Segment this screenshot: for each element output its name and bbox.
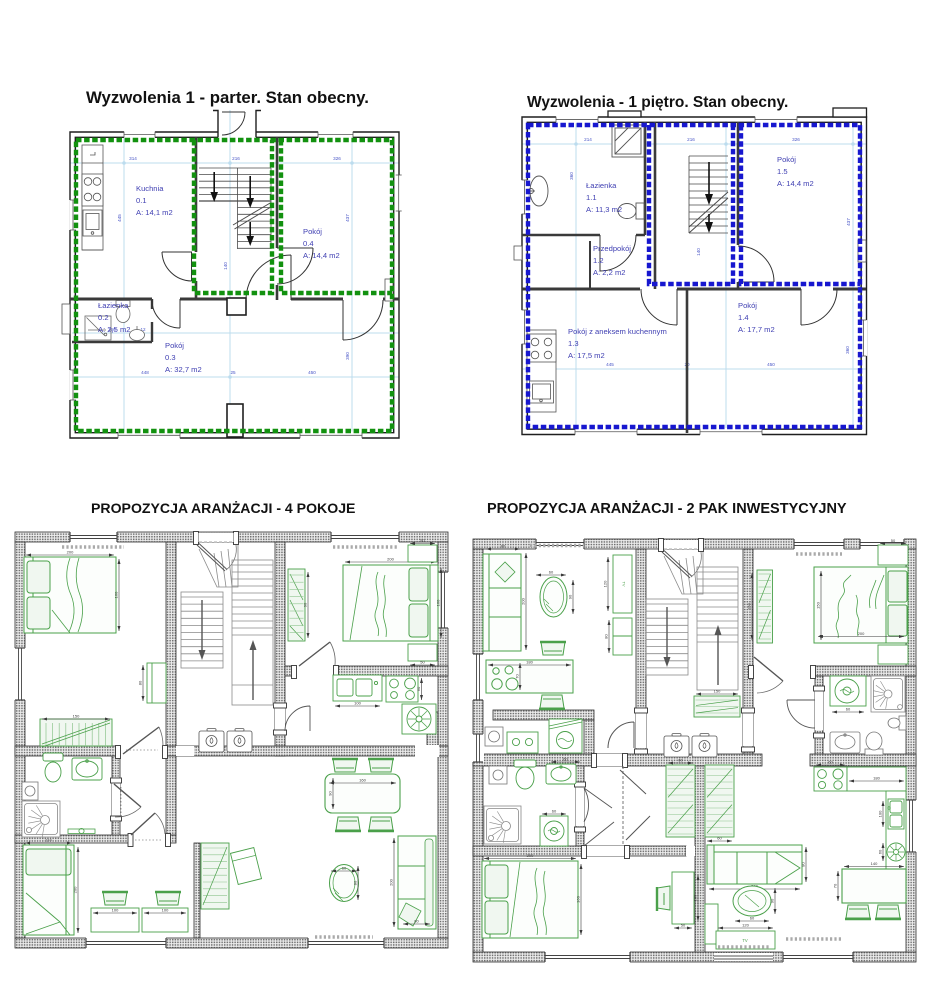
svg-text:0.3: 0.3 [165, 353, 176, 362]
svg-text:0.2: 0.2 [98, 313, 109, 322]
svg-text:150: 150 [816, 601, 821, 608]
svg-text:Łazienka: Łazienka [98, 301, 129, 310]
svg-text:200: 200 [521, 597, 526, 604]
svg-text:100: 100 [878, 810, 883, 817]
svg-text:200: 200 [389, 878, 394, 885]
svg-text:A: 14,4 m2: A: 14,4 m2 [303, 251, 340, 260]
svg-text:PROPOZYCJA ARANŻACJI - 2 PAK I: PROPOZYCJA ARANŻACJI - 2 PAK INWESTYCYJN… [487, 500, 847, 517]
svg-text:60: 60 [828, 760, 833, 765]
svg-text:50: 50 [681, 923, 686, 928]
svg-text:445: 445 [117, 214, 122, 222]
svg-text:314: 314 [129, 156, 137, 161]
svg-text:326: 326 [792, 137, 800, 142]
svg-text:110: 110 [45, 838, 52, 843]
svg-text:Pokój: Pokój [777, 155, 796, 164]
svg-text:70: 70 [833, 883, 838, 888]
svg-text:50: 50 [420, 538, 425, 543]
svg-text:Kuchnia: Kuchnia [136, 184, 164, 193]
svg-text:200: 200 [387, 557, 394, 562]
svg-text:Pokój: Pokój [165, 341, 184, 350]
svg-text:80: 80 [604, 634, 609, 639]
svg-text:0.1: 0.1 [136, 196, 147, 205]
svg-text:60: 60 [563, 757, 568, 762]
svg-text:60: 60 [878, 849, 883, 854]
svg-text:A: 2,2 m2: A: 2,2 m2 [593, 268, 626, 277]
svg-text:1.4: 1.4 [738, 313, 749, 322]
svg-text:60: 60 [549, 570, 554, 575]
svg-text:Pokój: Pokój [303, 227, 322, 236]
svg-text:80: 80 [353, 880, 358, 885]
svg-text:160: 160 [436, 599, 441, 606]
svg-text:A: 17,5 m2: A: 17,5 m2 [568, 351, 605, 360]
svg-text:150: 150 [714, 689, 721, 694]
svg-text:TV: TV [742, 938, 748, 943]
svg-text:150: 150 [747, 602, 752, 609]
svg-text:A: 14,1 m2: A: 14,1 m2 [136, 208, 173, 217]
svg-text:160: 160 [114, 591, 119, 598]
svg-text:160: 160 [576, 895, 581, 902]
svg-text:437: 437 [345, 214, 350, 222]
svg-text:Pokój: Pokój [738, 301, 757, 310]
svg-text:80: 80 [414, 919, 419, 924]
svg-text:Pokój z aneksem kuchennym: Pokój z aneksem kuchennym [568, 327, 667, 336]
svg-text:216: 216 [232, 156, 240, 161]
svg-text:216: 216 [687, 137, 695, 142]
svg-text:80: 80 [501, 544, 506, 549]
svg-text:60: 60 [416, 686, 421, 691]
svg-text:PROPOZYCJA ARANŻACJI - 4 POKOJ: PROPOZYCJA ARANŻACJI - 4 POKOJE [91, 500, 355, 516]
svg-text:100: 100 [354, 701, 361, 706]
svg-text:214: 214 [584, 137, 592, 142]
svg-text:360: 360 [845, 346, 850, 354]
svg-text:150: 150 [73, 714, 80, 719]
svg-text:160: 160 [359, 778, 366, 783]
svg-text:90: 90 [303, 602, 308, 607]
svg-text:200: 200 [67, 550, 74, 555]
svg-text:60: 60 [552, 809, 557, 814]
svg-text:A: 11,3 m2: A: 11,3 m2 [586, 205, 622, 214]
svg-text:100: 100 [112, 908, 119, 913]
svg-text:A: 14,4 m2: A: 14,4 m2 [777, 179, 814, 188]
svg-text:TV: TV [622, 581, 627, 586]
svg-text:200: 200 [527, 853, 534, 858]
svg-text:140: 140 [696, 248, 701, 256]
svg-text:Łazienka: Łazienka [586, 181, 617, 190]
svg-text:1.2: 1.2 [593, 256, 604, 265]
svg-text:120: 120 [742, 923, 749, 928]
svg-text:120: 120 [603, 580, 608, 587]
svg-text:140: 140 [871, 861, 878, 866]
svg-text:1.3: 1.3 [568, 339, 579, 348]
svg-text:437: 437 [846, 218, 851, 226]
svg-text:A: 17,7 m2: A: 17,7 m2 [738, 325, 775, 334]
svg-text:445: 445 [606, 362, 614, 367]
svg-text:Wyzwolenia 1 - parter. Stan ob: Wyzwolenia 1 - parter. Stan obecny. [86, 88, 369, 107]
svg-text:390: 390 [345, 352, 350, 360]
svg-text:90: 90 [770, 898, 775, 903]
svg-text:60: 60 [750, 916, 755, 921]
svg-text:326: 326 [333, 156, 341, 161]
svg-text:50: 50 [891, 538, 896, 543]
svg-text:60: 60 [678, 758, 683, 763]
svg-text:450: 450 [767, 362, 775, 367]
svg-text:448: 448 [141, 370, 149, 375]
svg-text:90: 90 [328, 791, 333, 796]
svg-text:25: 25 [230, 370, 236, 375]
svg-text:60: 60 [717, 836, 722, 841]
svg-text:60: 60 [342, 866, 347, 871]
svg-text:180: 180 [873, 776, 880, 781]
svg-text:60: 60 [846, 707, 851, 712]
svg-text:90: 90 [568, 594, 573, 599]
svg-text:A: 2,5 m2: A: 2,5 m2 [98, 325, 131, 334]
svg-text:80: 80 [801, 862, 806, 867]
svg-text:0.4: 0.4 [303, 239, 314, 248]
svg-text:180: 180 [526, 660, 533, 665]
svg-text:80: 80 [138, 680, 143, 685]
svg-text:Wyzwolenia - 1 piętro. Stan ob: Wyzwolenia - 1 piętro. Stan obecny. [527, 94, 788, 111]
svg-text:Przedpokój: Przedpokój [593, 244, 631, 253]
svg-text:200: 200 [73, 886, 78, 893]
svg-text:1.1: 1.1 [586, 193, 597, 202]
svg-text:100: 100 [162, 908, 169, 913]
svg-text:140: 140 [223, 262, 228, 270]
svg-text:450: 450 [308, 370, 316, 375]
svg-text:A: 32,7 m2: A: 32,7 m2 [165, 365, 202, 374]
svg-text:1.5: 1.5 [777, 167, 788, 176]
svg-text:50: 50 [420, 660, 425, 665]
svg-text:70: 70 [515, 674, 520, 679]
svg-text:200: 200 [858, 631, 865, 636]
svg-text:100: 100 [693, 894, 698, 901]
svg-text:360: 360 [569, 172, 574, 180]
